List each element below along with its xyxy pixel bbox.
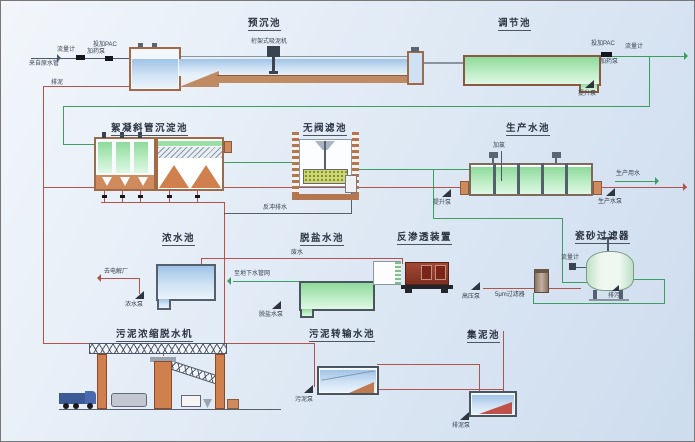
pipe-green-main [63,106,650,107]
label-cartridge: 5μm过滤器 [495,292,525,299]
floc-valve-4 [167,195,172,198]
prod-tank-water [471,167,591,194]
filter-wall-left [292,132,299,194]
label-hp-pump: 高压泵 [462,294,480,301]
floc-cell-3 [134,142,148,173]
pipe-green-reg-drop [649,56,650,107]
dewater-centrifuge [111,393,147,407]
presed-outlet-box [407,51,424,85]
raw-flow-meter-valve [76,55,85,60]
truss-suction-machine-foot [269,71,278,74]
pipe-ceramic-in [562,282,587,283]
pipe-mid-drop [224,202,225,343]
pipe-collect-drop2 [503,331,504,393]
label-chlorine: 加氯 [493,143,505,150]
pipe-cartridge-up [533,293,534,304]
dewater-column-right [215,354,225,409]
label-reg-dose-pump: 加药泵 [600,59,618,66]
pipe-electrolysis [101,278,139,279]
concentrate-tank [156,264,216,301]
label-sludge-transfer: 污泥转输水池 [309,326,375,342]
label-ceramic-filter: 瓷砂过滤器 [575,228,630,244]
prod-divider-4 [565,163,568,194]
pipe-filter-to-prod [358,169,470,170]
ro-door-1 [421,265,432,280]
label-raw-flow-meter: 流量计 [57,47,75,54]
floc-valve-2 [120,195,125,198]
label-concentrate: 浓水池 [162,230,195,246]
filter-center-pipe [324,141,326,169]
presed-floor [217,75,423,83]
floc-cell-1 [98,142,112,173]
label-waste: 废水 [291,250,303,257]
ro-door-2 [435,265,446,280]
pipe-cartridge-to-vessel [549,288,581,289]
pipe-collect-h [379,389,504,390]
label-sludge-collect: 集泥池 [467,327,500,343]
regulating-dosing-valve [601,52,612,57]
filter-side-box [345,175,357,193]
label-reg-dose-pac: 投加PAC [591,41,615,48]
ceramic-meter-stem [576,267,586,268]
pipe-vessel-out [633,279,665,280]
label-to-electrolysis: 去电解厂 [104,269,128,276]
label-reverse-osmosis: 反渗透装置 [397,229,452,245]
label-regulating: 调节池 [498,15,531,31]
mud-discharge-pump [460,412,469,420]
pipe-regulating-outlet [599,56,687,57]
raw-dosing-valve [105,56,113,61]
pipe-waste [201,258,403,259]
label-drain-mud: 排泥 [51,80,63,87]
pipe-branch-down [433,169,434,218]
truck-wheel-1 [63,403,69,409]
label-sludge-pump: 污泥泵 [295,397,313,404]
pipe-ceramic-down [562,218,563,282]
settler-tube-module [158,147,222,158]
water-treatment-process-flow-diagram: 预沉池 调节池 絮凝斜管沉淀池 无阀滤池 生产水池 浓水池 脱盐水池 反渗透装置… [0,0,695,442]
label-to-underground: 至地下水管网 [234,271,270,278]
pipe-transfer-out [377,364,480,365]
arrow-regulating-outlet [684,52,692,60]
pipe-green-into-floc [63,144,96,145]
floc-valve-3 [138,195,143,198]
presed-outlet-fitting [411,47,419,52]
chlorine-pipe [501,151,502,181]
label-reg-lift-pump: 提升泵 [578,91,596,98]
pipe-branch-h [433,218,563,219]
dewater-cone [203,399,212,408]
label-production-pump: 生产水泵 [598,199,622,206]
label-raw-dose-pump: 加药泵 [87,49,105,56]
cartridge-filter-cap [534,269,549,273]
ro-foot-1 [405,289,412,293]
dewater-box-orange [227,399,239,409]
pipe-presed-to-regulating [422,62,465,64]
floc-valve-1 [102,195,107,198]
label-truss-machine: 桁架式吸泥机 [251,39,287,46]
truss-suction-machine-body [267,46,280,57]
floc-valve-5 [195,195,200,198]
sludge-transfer-pump [304,385,313,393]
dewater-tank-small [181,395,201,407]
dewater-ground [59,409,281,410]
pipe-desal-out [233,281,300,282]
prod-pad-right [593,181,602,195]
prod-lift-pump [442,189,451,197]
arrow-production-use [655,177,663,185]
ro-membrane-end-left [395,262,401,284]
arrow-electrolysis [93,274,101,282]
label-flocculation: 絮凝斜管沉淀池 [111,120,188,136]
pipe-sludge-left-v [43,86,44,344]
label-desal-pump: 脱盐水泵 [259,312,283,319]
label-valveless-filter: 无阀滤池 [303,120,347,136]
arrow-red-main [683,183,691,191]
label-prod-lift-pump: 提升泵 [433,200,451,207]
desal-sump [300,309,314,318]
production-pump [606,188,615,196]
prod-divider-3 [541,163,544,194]
floc-mixer-1 [102,132,106,138]
label-production: 生产水池 [506,120,550,136]
pipe-return-h [533,303,665,304]
label-blowdown: 排污 [608,293,620,300]
pipe-floc-to-filter [222,162,302,163]
label-reg-flow-meter: 流量计 [625,44,643,51]
dewater-truss-beam [89,343,227,354]
label-pre-sedimentation: 预沉池 [248,15,281,31]
pipe-green-drop-left [63,106,64,145]
pipe-floc-manifold [101,202,225,203]
prod-divider-2 [517,163,520,194]
filter-media-bed [303,169,348,184]
prod-vent-1-stem [492,158,494,163]
label-raw-dose-pac: 投加PAC [93,42,117,49]
label-production-use: 生产用水 [616,171,640,178]
label-backwash: 反冲排水 [263,205,287,212]
pipe-backwash-h [224,213,352,214]
label-dewatering: 污泥浓缩脱水机 [116,326,193,342]
settler-green-strip [158,141,222,146]
pipe-production-use [615,181,657,182]
prod-pad-left [460,181,469,195]
presed-well-water [132,59,178,88]
label-desalinated: 脱盐水池 [300,230,344,246]
sludge-truck-bed [59,393,85,404]
concentrate-sump [157,299,171,310]
ceramic-flow-meter-icon [569,263,576,270]
truck-wheel-3 [87,403,93,409]
desalinated-pump [272,301,281,309]
dewater-column-left [97,354,107,409]
label-mud-pump: 排泥泵 [452,423,470,430]
label-raw-inlet: 来自原水管 [29,61,59,68]
ro-foot-2 [441,289,448,293]
pipe-electrolysis-v [139,278,140,294]
filter-floor [292,194,359,200]
pipe-waste-ro [402,258,403,264]
pipe-sludge-to-transfer [314,343,315,387]
desal-tank [299,281,375,311]
regulating-tank [463,55,601,86]
dewater-pedestal [154,361,172,409]
pipe-vessel-out-down [664,279,665,304]
ceramic-vessel [586,251,634,291]
truck-wheel-2 [73,403,79,409]
truss-suction-machine-leg [272,57,275,72]
pipe-hp-to-cartridge [483,288,535,289]
prod-divider-1 [493,163,496,194]
label-concentrate-pump: 浓水泵 [125,302,143,309]
settler-outlet-box [224,141,232,153]
floc-cell-2 [116,142,130,173]
prod-vent-2-stem [555,158,557,163]
label-ceramic-flow-meter: 流量计 [561,255,579,262]
high-pressure-pump [471,282,480,290]
